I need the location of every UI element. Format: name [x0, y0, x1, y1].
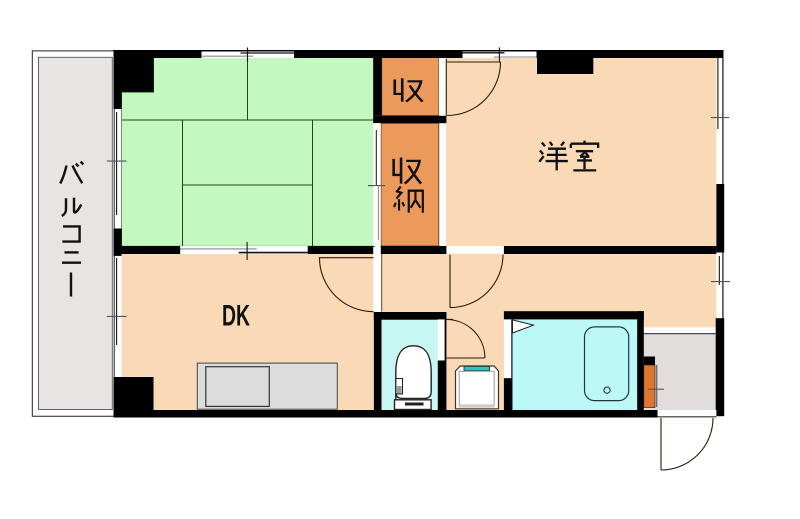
- svg-text:DK: DK: [222, 300, 250, 333]
